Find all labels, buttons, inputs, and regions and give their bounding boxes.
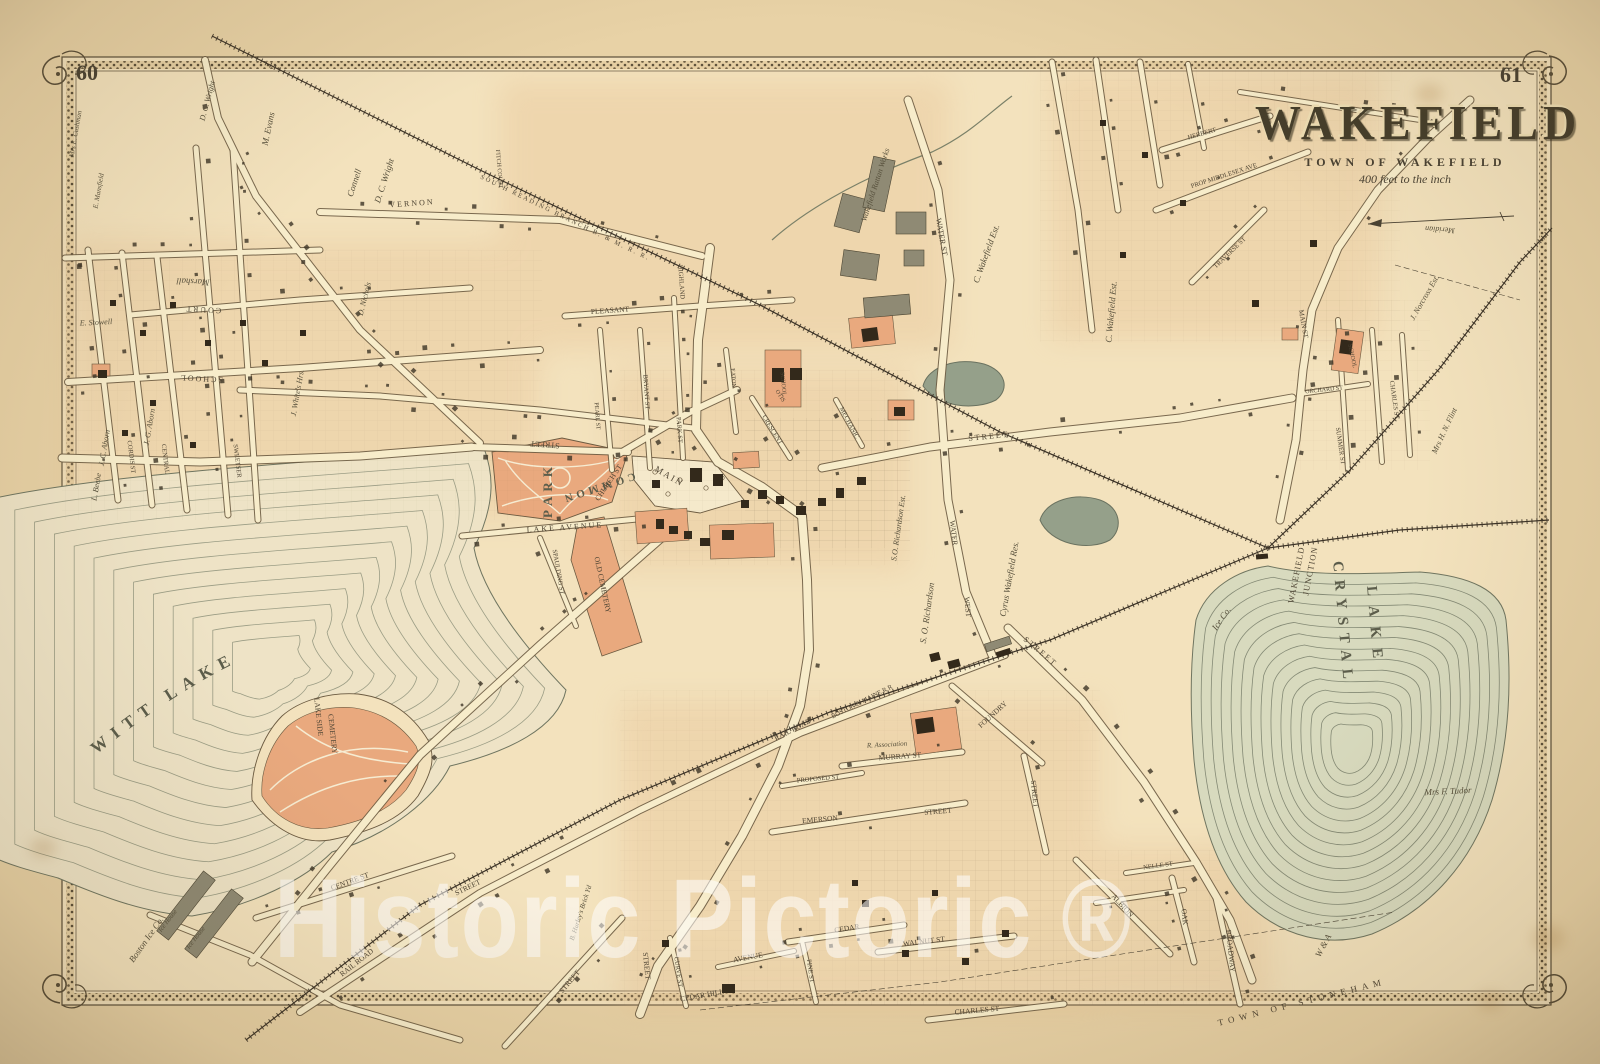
map-title: WAKEFIELD <box>1255 95 1555 151</box>
building <box>1002 930 1009 937</box>
building <box>662 940 669 947</box>
building <box>796 506 806 515</box>
map-subtitle: TOWN OF WAKEFIELD <box>1255 155 1555 170</box>
map-label: WEST <box>962 596 973 618</box>
building <box>110 300 116 306</box>
building <box>741 500 749 508</box>
building <box>140 330 146 336</box>
salmon-block <box>1282 328 1298 340</box>
building <box>857 477 866 485</box>
building <box>1120 252 1126 258</box>
building <box>852 880 858 886</box>
building <box>1310 240 1317 247</box>
building <box>1100 120 1106 126</box>
factory-building <box>863 294 911 318</box>
building <box>1256 553 1268 559</box>
title-block: WAKEFIELD TOWN OF WAKEFIELD 400 feet to … <box>1255 96 1555 187</box>
building <box>669 526 678 534</box>
building <box>713 474 723 486</box>
factory-building <box>840 250 879 281</box>
building <box>758 490 767 499</box>
building <box>894 407 905 416</box>
building <box>656 519 664 529</box>
building <box>1142 152 1148 158</box>
map-label: Marshall <box>176 276 211 288</box>
building <box>790 368 802 380</box>
building <box>915 717 935 734</box>
building <box>652 480 660 488</box>
building <box>98 370 107 378</box>
building <box>962 958 969 965</box>
building <box>836 488 844 498</box>
map-scale-note: 400 feet to the inch <box>1255 172 1555 187</box>
building <box>902 950 909 957</box>
building <box>300 330 306 336</box>
factory-building <box>896 212 926 234</box>
building <box>700 538 710 546</box>
building <box>122 430 128 436</box>
atlas-page: QUANNAPOWITT LAKECRYSTALLAKEPARKCOMMONWA… <box>0 0 1600 1064</box>
building <box>684 531 692 539</box>
building <box>722 530 734 540</box>
building <box>722 984 735 993</box>
map-label: E. Stowell <box>79 317 114 328</box>
map-label: OAK <box>1179 908 1190 926</box>
building <box>862 900 869 907</box>
building <box>776 496 784 504</box>
map-label: PARK <box>540 462 555 518</box>
page-number-left: 60 <box>76 60 98 86</box>
building <box>170 302 176 308</box>
building <box>932 890 938 896</box>
page-number-right: 61 <box>1500 62 1522 88</box>
building <box>818 498 826 506</box>
building <box>861 327 879 342</box>
building <box>150 400 156 406</box>
salmon-block <box>709 523 774 559</box>
building <box>262 360 268 366</box>
building <box>690 468 702 482</box>
building <box>240 320 246 326</box>
building <box>1180 200 1186 206</box>
factory-building <box>904 250 924 266</box>
building <box>205 340 211 346</box>
map-label: COURT <box>184 304 221 315</box>
building <box>1252 300 1259 307</box>
building <box>190 442 196 448</box>
